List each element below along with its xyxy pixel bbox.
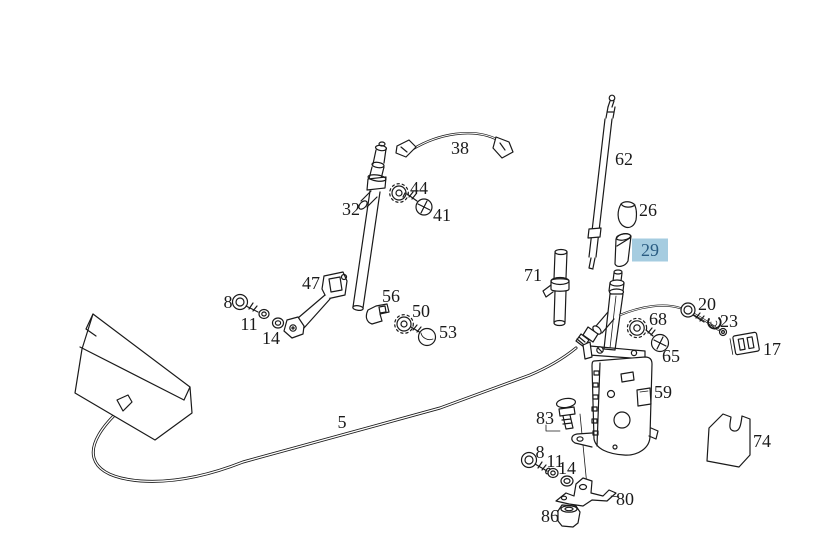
connector-clip-17 bbox=[730, 332, 760, 355]
clip-56 bbox=[366, 304, 389, 324]
part-label-65[interactable]: 65 bbox=[662, 346, 680, 366]
part-label-86[interactable]: 86 bbox=[541, 506, 559, 526]
part-label-14-lower[interactable]: 14 bbox=[558, 458, 576, 478]
bolt-8-left bbox=[233, 295, 259, 313]
cap-26 bbox=[618, 202, 636, 228]
part-label-47[interactable]: 47 bbox=[302, 273, 320, 293]
part-label-26[interactable]: 26 bbox=[639, 200, 657, 220]
part-label-74[interactable]: 74 bbox=[753, 431, 771, 451]
assembly-axis-line bbox=[580, 414, 587, 486]
part-label-5[interactable]: 5 bbox=[338, 412, 347, 432]
part-label-14-left[interactable]: 14 bbox=[262, 328, 280, 348]
part-label-41[interactable]: 41 bbox=[433, 205, 451, 225]
part-label-32[interactable]: 32 bbox=[342, 199, 360, 219]
part-label-59[interactable]: 59 bbox=[654, 382, 672, 402]
part-label-56[interactable]: 56 bbox=[382, 286, 400, 306]
part-label-11-left[interactable]: 11 bbox=[240, 314, 257, 334]
part-label-17[interactable]: 17 bbox=[763, 339, 781, 359]
part-label-71[interactable]: 71 bbox=[524, 265, 542, 285]
part-label-8-lower[interactable]: 8 bbox=[536, 442, 545, 462]
part-label-80[interactable]: 80 bbox=[616, 489, 634, 509]
telescopic-rod-62 bbox=[588, 95, 615, 269]
part-labels-layer: 3862262932444171478111456505320236865175… bbox=[224, 138, 782, 526]
part-label-62[interactable]: 62 bbox=[615, 149, 633, 169]
part-label-23[interactable]: 23 bbox=[720, 311, 738, 331]
mounting-panel bbox=[75, 314, 192, 440]
mast-guide-tube bbox=[576, 270, 624, 350]
part-label-20[interactable]: 20 bbox=[698, 294, 716, 314]
parts-diagram-page: 3862262932444171478111456505320236865175… bbox=[0, 0, 831, 536]
washer-14-left bbox=[273, 318, 284, 328]
seal-tube-71 bbox=[543, 250, 569, 326]
part-label-44[interactable]: 44 bbox=[410, 178, 428, 198]
part-label-53[interactable]: 53 bbox=[439, 322, 457, 342]
shim-plate-74 bbox=[707, 414, 750, 467]
part-label-83[interactable]: 83 bbox=[536, 408, 554, 428]
lock-washer-68 bbox=[627, 318, 646, 337]
part-label-38[interactable]: 38 bbox=[451, 138, 469, 158]
sleeve-29 bbox=[615, 233, 631, 267]
nut-86 bbox=[558, 505, 580, 527]
screw-53 bbox=[411, 325, 436, 346]
part-label-29[interactable]: 29 bbox=[641, 240, 659, 260]
lock-washer-50 bbox=[395, 315, 414, 334]
part-label-8-left[interactable]: 8 bbox=[224, 292, 233, 312]
part-label-50[interactable]: 50 bbox=[412, 301, 430, 321]
antenna-motor-59 bbox=[572, 357, 658, 455]
part-label-68[interactable]: 68 bbox=[649, 309, 667, 329]
washer-11-left bbox=[259, 310, 269, 319]
diagram-canvas: 3862262932444171478111456505320236865175… bbox=[0, 0, 831, 536]
